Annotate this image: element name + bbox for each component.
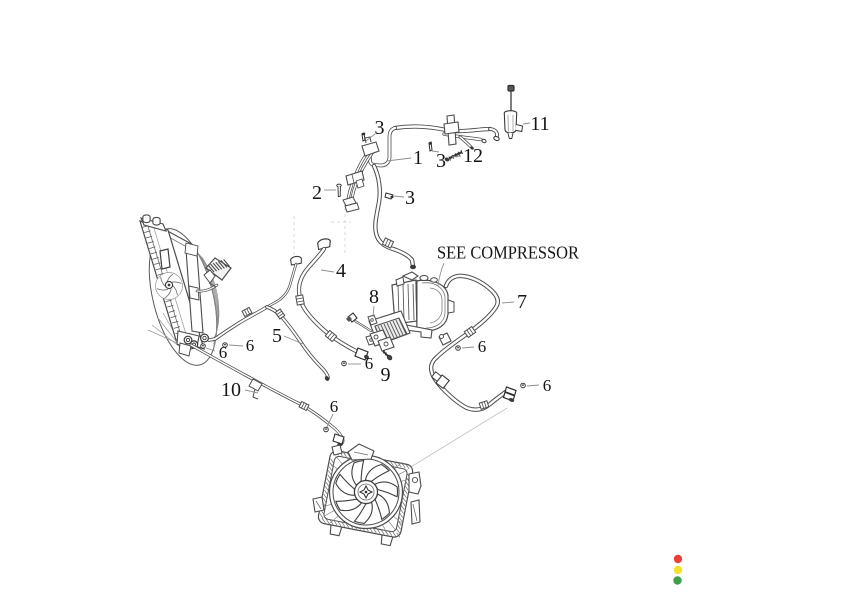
- svg-text:6: 6: [365, 354, 374, 373]
- svg-text:7: 7: [517, 291, 527, 313]
- svg-text:12: 12: [463, 145, 483, 167]
- svg-text:3: 3: [375, 117, 385, 139]
- svg-text:6: 6: [219, 343, 228, 362]
- svg-text:8: 8: [369, 286, 379, 308]
- svg-text:4: 4: [336, 260, 346, 282]
- svg-text:6: 6: [330, 397, 339, 416]
- svg-text:6: 6: [246, 336, 255, 355]
- svg-text:9: 9: [381, 364, 391, 386]
- svg-text:3: 3: [405, 187, 415, 209]
- svg-text:6: 6: [543, 376, 552, 395]
- svg-text:6: 6: [478, 337, 487, 356]
- svg-text:1: 1: [413, 147, 423, 169]
- svg-text:SEE COMPRESSOR: SEE COMPRESSOR: [437, 243, 579, 263]
- svg-text:3: 3: [436, 150, 446, 172]
- svg-text:5: 5: [272, 325, 282, 347]
- svg-text:2: 2: [312, 182, 322, 204]
- svg-text:10: 10: [221, 379, 241, 401]
- svg-text:11: 11: [530, 113, 549, 135]
